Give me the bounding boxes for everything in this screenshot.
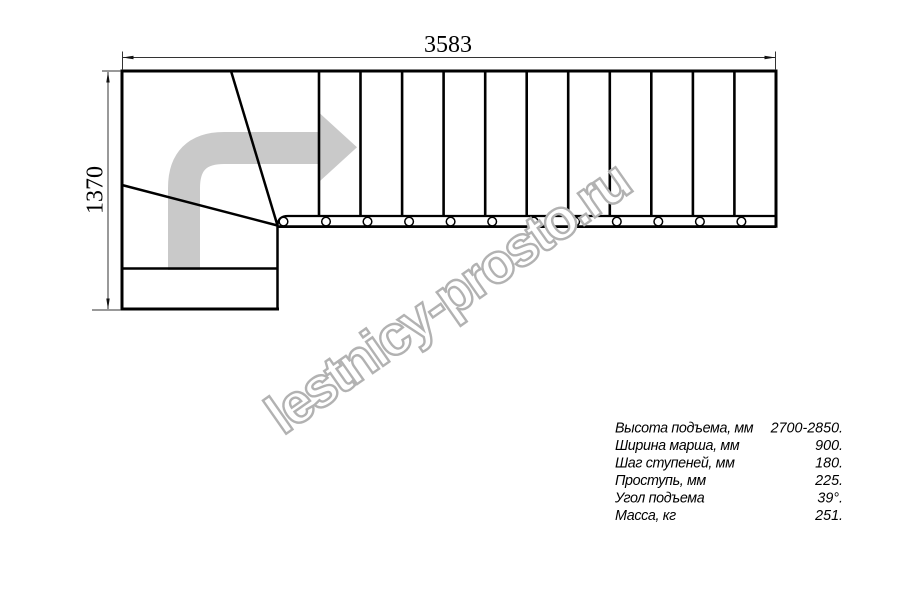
svg-text:2700-2850.: 2700-2850. <box>770 421 843 437</box>
svg-text:39°.: 39°. <box>817 491 843 507</box>
svg-text:900.: 900. <box>815 438 843 454</box>
svg-text:225.: 225. <box>814 473 843 489</box>
svg-text:Ширина марша, мм: Ширина марша, мм <box>615 438 740 454</box>
svg-text:Угол подъема: Угол подъема <box>614 491 705 507</box>
svg-text:3583: 3583 <box>424 32 472 58</box>
svg-text:1370: 1370 <box>83 166 109 214</box>
svg-text:Высота подъема, мм: Высота подъема, мм <box>615 421 754 437</box>
svg-text:251.: 251. <box>814 508 843 524</box>
svg-text:Проступь, мм: Проступь, мм <box>615 473 706 489</box>
svg-text:180.: 180. <box>815 456 843 472</box>
svg-text:Масса, кг: Масса, кг <box>615 508 676 524</box>
svg-text:Шаг ступеней, мм: Шаг ступеней, мм <box>615 456 735 472</box>
svg-text:lestnicy-prosto.ru: lestnicy-prosto.ru <box>254 149 641 446</box>
